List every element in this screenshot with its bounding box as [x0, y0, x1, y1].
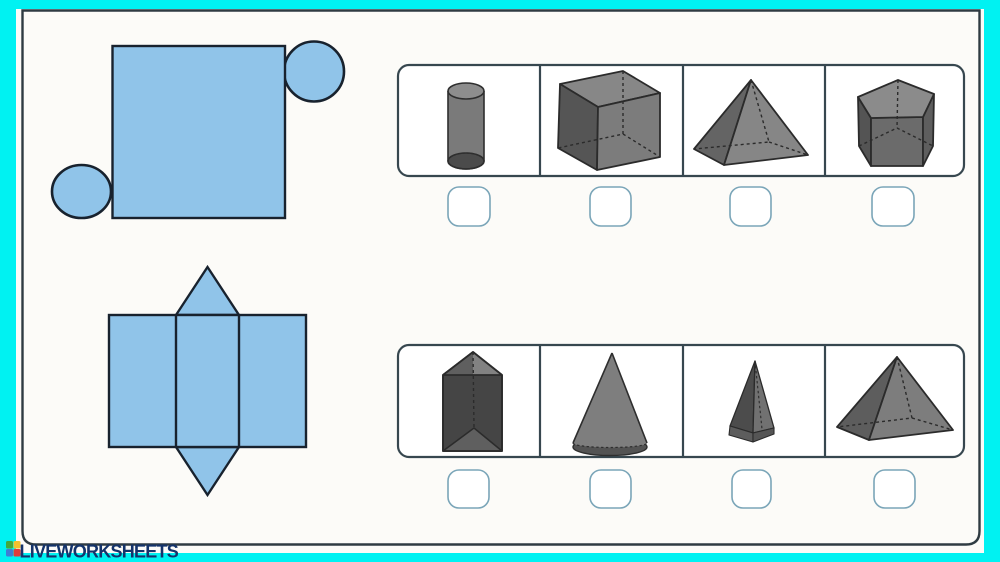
svg-text:LIVEWORKSHEETS: LIVEWORKSHEETS — [20, 542, 179, 562]
